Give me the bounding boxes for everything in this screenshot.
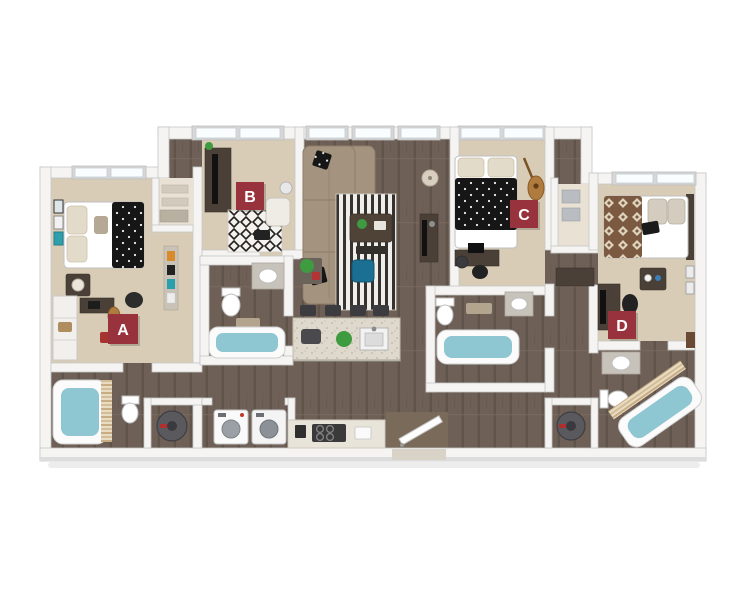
vanity-d [602, 352, 640, 374]
amp-c [456, 256, 468, 268]
floor-lamp [422, 170, 438, 186]
coffee-maker [295, 425, 306, 438]
front-door-opening [392, 449, 446, 460]
wall-a-south-1 [51, 363, 123, 372]
nightstand-a [66, 274, 90, 296]
small-appliance [355, 427, 371, 439]
window-bedroom-d [612, 172, 696, 185]
toilet-a [122, 396, 139, 423]
step-wall-left [158, 127, 169, 178]
closet-a [152, 178, 193, 232]
right-wall [695, 173, 706, 460]
media-desk-b [205, 142, 231, 212]
bathtub-b [209, 327, 285, 358]
table-shelf [356, 246, 386, 254]
room-badge-b: B [236, 182, 266, 212]
bathtub-c [437, 330, 519, 364]
kitchen-counter [288, 420, 385, 448]
hallway-center-right [556, 268, 594, 286]
utility-right [557, 412, 585, 440]
wall-d-west-upper [589, 173, 598, 250]
wall-d-south-1 [598, 341, 640, 350]
vanity-c [505, 292, 533, 316]
badge-label-b: B [244, 189, 256, 206]
wall-decor-bath-d [686, 332, 695, 348]
lounge-chair-b [266, 198, 290, 226]
wall-c-east-lower [545, 348, 554, 392]
bath-mat-c [466, 303, 492, 314]
shower-curtain-a [101, 380, 112, 442]
left-wall [40, 167, 51, 460]
toilet-b [222, 288, 240, 316]
wall-c-east-mid [545, 284, 554, 316]
decor-figure-b [280, 182, 292, 194]
badge-label-c: C [518, 207, 530, 224]
bed-a [64, 202, 144, 268]
island-sink [360, 327, 388, 350]
bed-c [455, 156, 517, 248]
tv-console [420, 214, 438, 262]
accent-chair [352, 260, 374, 282]
room-badge-d: D [608, 311, 638, 341]
windows-living-room [306, 126, 440, 140]
utility-left [157, 411, 187, 441]
room-badge-c: C [510, 200, 540, 230]
badge-label-d: D [616, 318, 628, 335]
island-appliance [301, 329, 321, 344]
window-bedroom-a [72, 166, 146, 179]
toilet-c [436, 298, 454, 325]
nightstand-d [640, 268, 666, 290]
window-bedroom-c [458, 126, 546, 140]
hall-credenza [556, 268, 594, 286]
floorplan-rendering: A B C D [0, 0, 740, 592]
coffee-table [350, 214, 392, 254]
speaker-b [254, 230, 270, 240]
kitchen-island [293, 318, 400, 362]
linen-cabinet-a [53, 296, 77, 360]
dryer [252, 410, 286, 444]
wall-art-a [54, 200, 63, 245]
bed-d [604, 194, 694, 260]
floorplan-canvas: A B C D [0, 0, 740, 592]
wall-a-south-2 [152, 363, 202, 372]
room-badge-a: A [108, 314, 140, 346]
wall-a-east-lower [193, 398, 202, 448]
side-table-living [300, 258, 322, 284]
window-bedroom-b [192, 126, 284, 140]
bookshelf-a [164, 246, 178, 310]
ground-shadow [48, 462, 700, 468]
island-plant [336, 331, 352, 347]
bathtub-a [53, 380, 112, 444]
bottom-wall-shade [40, 457, 706, 461]
washer [214, 410, 248, 444]
badge-label-a: A [117, 322, 129, 339]
vanity-b [252, 263, 284, 289]
wall-d-west-lower [589, 285, 598, 353]
